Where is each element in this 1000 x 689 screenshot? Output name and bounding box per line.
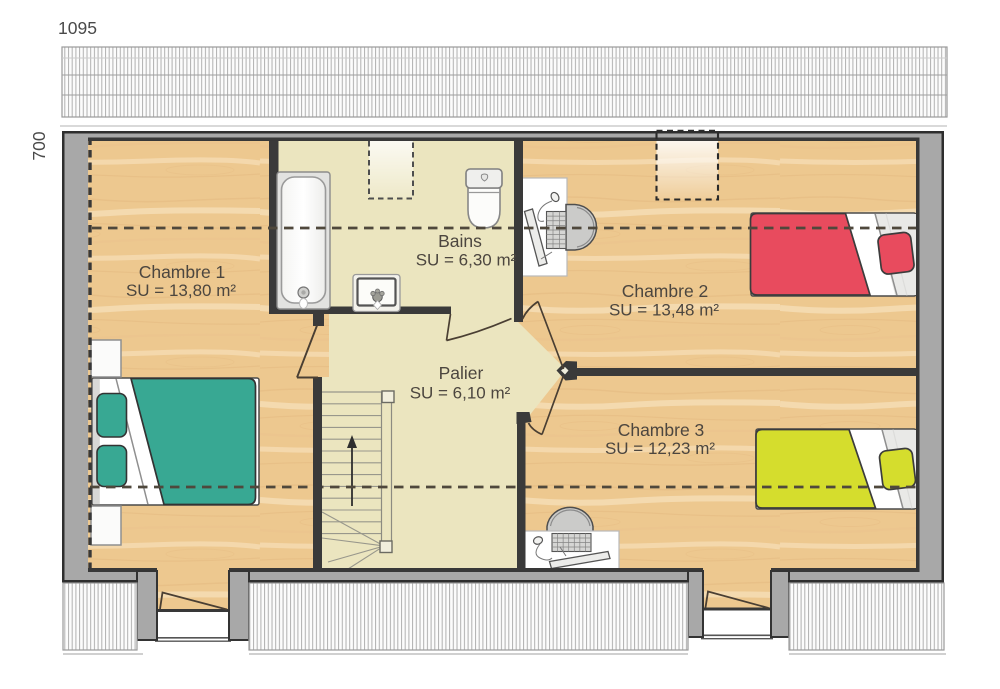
svg-text:Chambre 3: Chambre 3 — [618, 420, 705, 440]
svg-text:1095: 1095 — [58, 18, 97, 38]
svg-text:SU = 13,48 m²: SU = 13,48 m² — [609, 301, 719, 320]
svg-text:Palier: Palier — [439, 363, 484, 383]
svg-text:Bains: Bains — [438, 231, 482, 251]
svg-text:Chambre 2: Chambre 2 — [622, 281, 709, 301]
svg-text:SU = 6,30 m²: SU = 6,30 m² — [416, 251, 517, 270]
svg-text:SU = 6,10 m²: SU = 6,10 m² — [410, 384, 511, 403]
svg-text:Chambre 1: Chambre 1 — [139, 262, 226, 282]
svg-text:SU = 13,80 m²: SU = 13,80 m² — [126, 281, 236, 300]
svg-text:700: 700 — [29, 131, 49, 160]
svg-text:SU = 12,23 m²: SU = 12,23 m² — [605, 439, 715, 458]
